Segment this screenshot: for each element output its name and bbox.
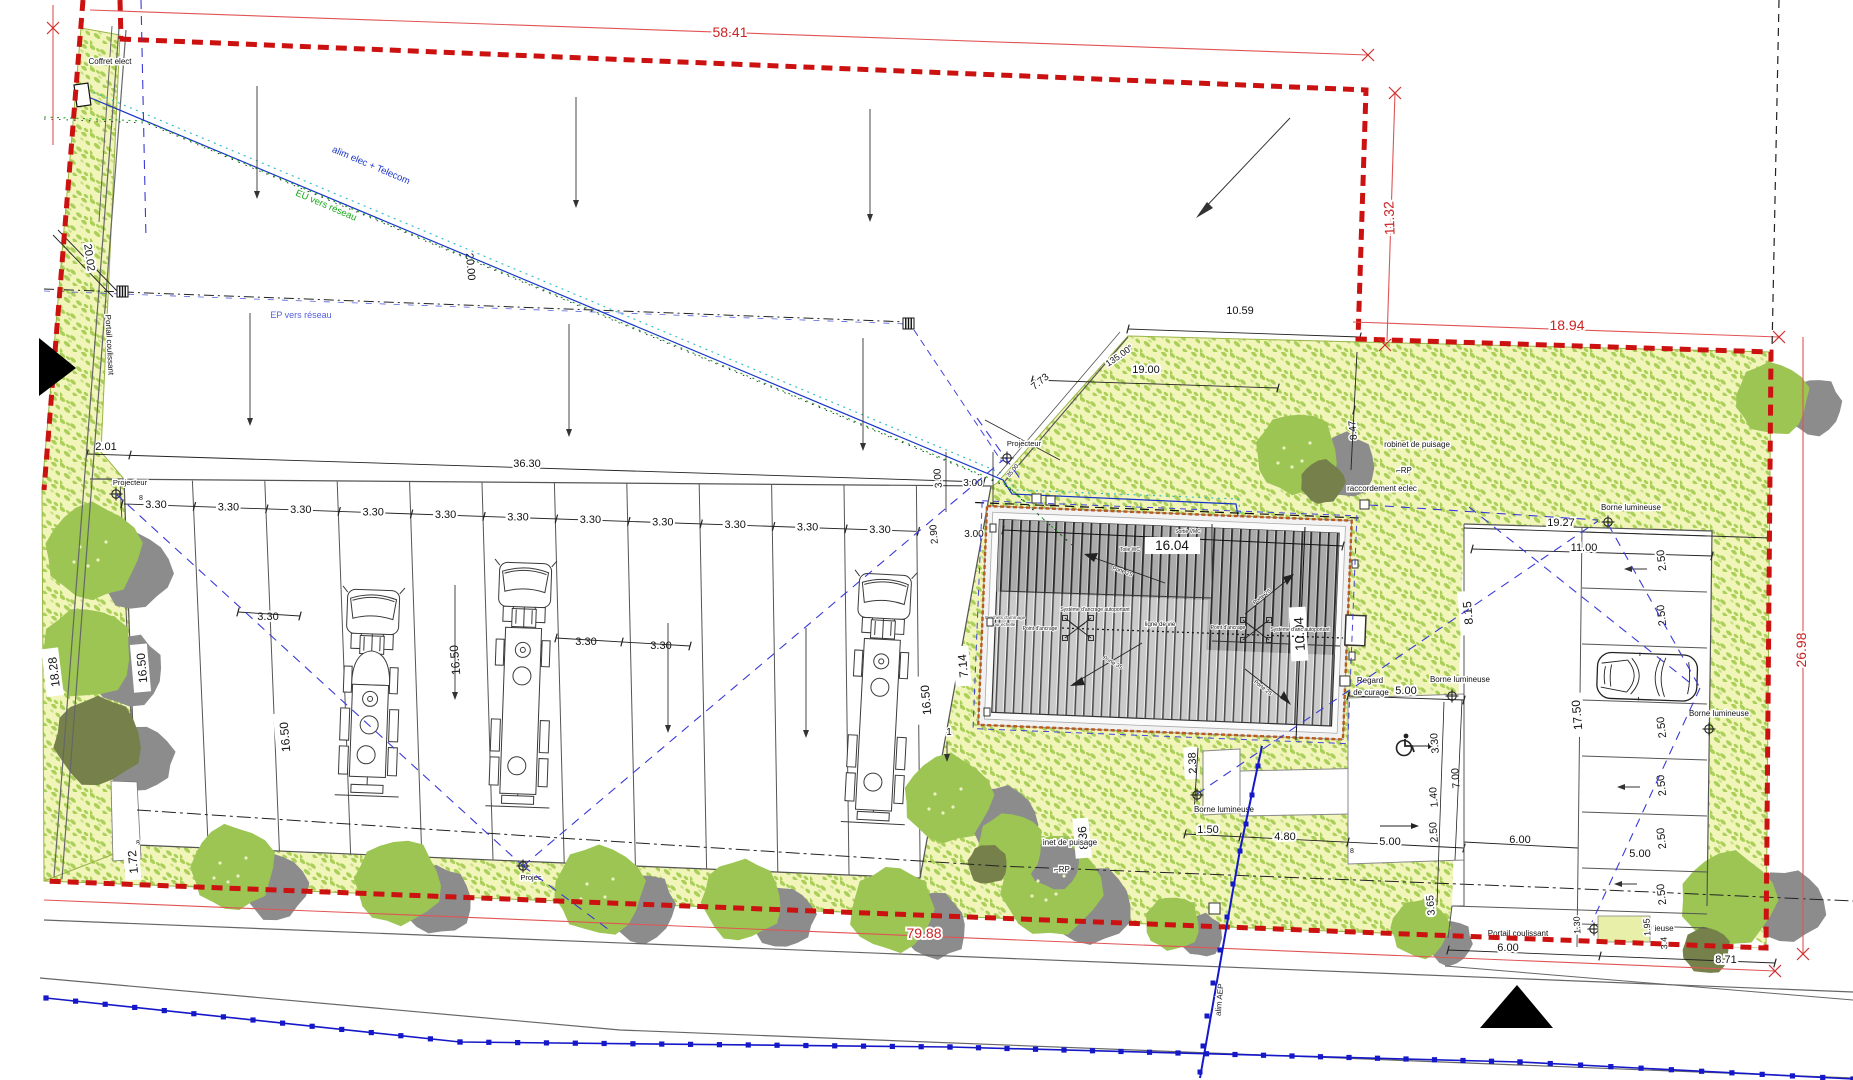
svg-text:7.00: 7.00 <box>1449 767 1463 789</box>
svg-text:de curage: de curage <box>1353 688 1389 697</box>
svg-text:3.30: 3.30 <box>435 509 456 521</box>
svg-text:EP vers réseau: EP vers réseau <box>270 310 331 320</box>
svg-text:3.30: 3.30 <box>650 640 671 652</box>
svg-text:3.65: 3.65 <box>1424 894 1438 916</box>
svg-text:6.00: 6.00 <box>1497 942 1518 954</box>
svg-text:16.50: 16.50 <box>918 684 935 715</box>
svg-text:18.94: 18.94 <box>1549 317 1584 333</box>
svg-text:79.88: 79.88 <box>906 925 941 941</box>
svg-text:3.30: 3.30 <box>580 514 601 526</box>
svg-text:1.50: 1.50 <box>1197 824 1218 836</box>
svg-text:11.00: 11.00 <box>1571 542 1598 554</box>
svg-text:raccordement eclec: raccordement eclec <box>1347 484 1417 493</box>
svg-text:Borne lumineuse: Borne lumineuse <box>1689 709 1750 718</box>
svg-text:26.98: 26.98 <box>1793 632 1809 667</box>
svg-text:5.00: 5.00 <box>1629 848 1650 860</box>
svg-text:ligne de vie: ligne de vie <box>1145 622 1176 628</box>
svg-text:3.30: 3.30 <box>362 507 383 519</box>
svg-text:pour echelle: pour echelle <box>991 622 1016 627</box>
svg-text:16.04: 16.04 <box>1155 538 1189 553</box>
svg-text:58.41: 58.41 <box>712 24 747 40</box>
svg-text:⌐RP: ⌐RP <box>1396 466 1412 475</box>
svg-text:3.30: 3.30 <box>218 502 239 514</box>
svg-text:2.50: 2.50 <box>1427 821 1441 843</box>
svg-text:Sortie VMC: Sortie VMC <box>1175 529 1201 535</box>
svg-text:7.14: 7.14 <box>955 653 971 678</box>
svg-text:19.00: 19.00 <box>1132 364 1160 376</box>
svg-text:19.27: 19.27 <box>1547 517 1575 529</box>
svg-text:8: 8 <box>139 495 143 502</box>
svg-text:Système d'anc autoportant: Système d'anc autoportant <box>1270 627 1330 633</box>
svg-text:3.30: 3.30 <box>290 504 311 516</box>
svg-text:3.00: 3.00 <box>932 468 945 489</box>
svg-text:Projecteur: Projecteur <box>113 478 148 487</box>
svg-text:10.59: 10.59 <box>1226 305 1254 317</box>
svg-text:Toile WC: Toile WC <box>1120 547 1140 553</box>
svg-text:36.30: 36.30 <box>513 458 541 470</box>
svg-text:Borne lumineuse: Borne lumineuse <box>1430 675 1491 684</box>
svg-text:3.30: 3.30 <box>257 611 278 623</box>
svg-text:3.30: 3.30 <box>507 512 528 524</box>
svg-text:robinet de puisage: robinet de puisage <box>1384 440 1450 449</box>
svg-text:Système d'ancrage autoportant: Système d'ancrage autoportant <box>1060 607 1130 613</box>
svg-text:10.04: 10.04 <box>1291 616 1308 651</box>
svg-text:Borne lumineuse: Borne lumineuse <box>1601 503 1662 512</box>
svg-text:16.50: 16.50 <box>277 721 294 752</box>
svg-text:4.80: 4.80 <box>1274 831 1295 843</box>
svg-text:3.30: 3.30 <box>869 524 890 536</box>
svg-text:1.30: 1.30 <box>1572 916 1583 934</box>
svg-text:3.30: 3.30 <box>1428 732 1442 754</box>
svg-text:17.50: 17.50 <box>1569 699 1586 730</box>
svg-text:inet de puisage: inet de puisage <box>1043 838 1098 847</box>
svg-text:1.95: 1.95 <box>1642 918 1653 936</box>
svg-text:3.30: 3.30 <box>145 499 166 511</box>
svg-text:5.00: 5.00 <box>1395 685 1416 697</box>
svg-text:Projecteur: Projecteur <box>1007 439 1042 448</box>
svg-text:1.72: 1.72 <box>125 849 141 874</box>
svg-text:8: 8 <box>1350 848 1354 855</box>
svg-text:Point d'ancrage: Point d'ancrage <box>1023 626 1058 632</box>
svg-text:3.30: 3.30 <box>575 636 596 648</box>
svg-text:Coffret elect: Coffret elect <box>89 57 133 66</box>
svg-text:11.32: 11.32 <box>1380 201 1397 236</box>
svg-text:5.00: 5.00 <box>1379 836 1400 848</box>
svg-text:⌐RP: ⌐RP <box>1054 865 1070 874</box>
svg-text:Regard: Regard <box>1357 676 1383 685</box>
svg-text:3.30: 3.30 <box>724 519 745 531</box>
svg-text:1.40: 1.40 <box>1427 786 1441 808</box>
svg-text:16.50: 16.50 <box>134 652 151 683</box>
svg-text:2.01: 2.01 <box>95 441 116 453</box>
svg-text:Point d'ancrage: Point d'ancrage <box>1211 625 1246 631</box>
svg-text:1: 1 <box>946 727 952 738</box>
svg-text:Borne lumineuse: Borne lumineuse <box>1194 805 1255 814</box>
svg-text:3.30: 3.30 <box>797 522 818 534</box>
svg-text:2.90: 2.90 <box>928 524 941 545</box>
svg-text:8.71: 8.71 <box>1715 954 1736 966</box>
svg-text:3.30: 3.30 <box>652 517 673 529</box>
